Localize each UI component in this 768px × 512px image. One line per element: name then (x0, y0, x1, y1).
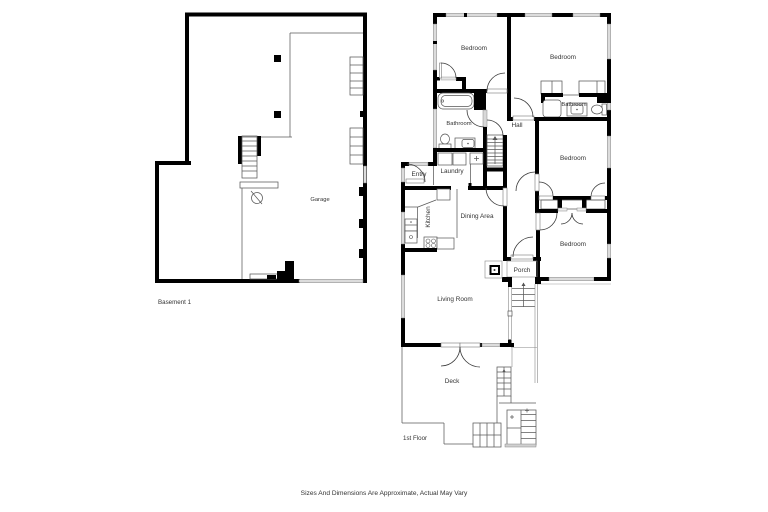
svg-text:Dining Area: Dining Area (460, 213, 493, 220)
svg-text:Hall: Hall (511, 122, 522, 129)
svg-text:Entry: Entry (412, 171, 428, 178)
svg-text:Bathroom: Bathroom (446, 121, 471, 127)
svg-text:Deck: Deck (445, 378, 460, 385)
svg-text:Basement 1: Basement 1 (158, 299, 192, 306)
svg-text:1st Floor: 1st Floor (403, 435, 427, 442)
svg-text:Sizes And Dimensions Are Appro: Sizes And Dimensions Are Approximate, Ac… (301, 490, 468, 497)
svg-text:Bathroom: Bathroom (561, 102, 586, 108)
svg-text:Bedroom: Bedroom (461, 45, 487, 52)
svg-text:Bedroom: Bedroom (560, 155, 586, 162)
svg-text:Porch: Porch (514, 267, 531, 274)
svg-text:Kitchen: Kitchen (425, 206, 432, 228)
svg-text:Garage: Garage (310, 197, 329, 203)
svg-text:Bedroom: Bedroom (560, 241, 586, 248)
svg-text:Living Room: Living Room (437, 296, 473, 303)
svg-text:Bedroom: Bedroom (550, 54, 576, 61)
svg-text:Laundry: Laundry (440, 168, 464, 175)
